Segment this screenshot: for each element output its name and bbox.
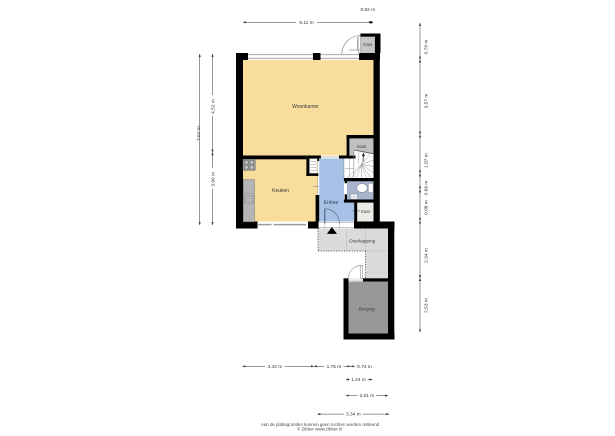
svg-text:0.08 m: 0.08 m [424,200,430,215]
svg-text:1.75 m: 1.75 m [327,364,342,370]
svg-text:0.74 m: 0.74 m [357,364,372,370]
svg-text:Keuken: Keuken [272,188,289,194]
svg-text:3.34 m: 3.34 m [346,412,361,418]
svg-text:2.34 m: 2.34 m [424,248,430,263]
svg-text:3.90 m: 3.90 m [210,172,216,187]
svg-text:6.11 m: 6.11 m [299,20,313,26]
svg-text:Woonkamer: Woonkamer [292,104,319,110]
svg-text:3.57 m: 3.57 m [424,94,430,109]
svg-text:© Zibber www.zibber.nl: © Zibber www.zibber.nl [297,427,342,432]
svg-text:Entree: Entree [324,200,339,206]
svg-text:Overkapping: Overkapping [349,238,375,243]
svg-text:1.24 m: 1.24 m [351,377,366,383]
svg-text:Kast: Kast [361,209,371,214]
svg-text:2.53 m: 2.53 m [424,298,430,313]
svg-text:3.42 m: 3.42 m [267,364,282,370]
svg-text:0.62 m: 0.62 m [360,7,375,13]
svg-text:0.69 m: 0.69 m [424,181,430,196]
svg-text:0.79 m: 0.79 m [424,40,430,55]
svg-text:1.87 m: 1.87 m [424,153,430,168]
svg-text:2.01 m: 2.01 m [360,393,375,399]
svg-text:Berging: Berging [359,306,375,311]
svg-text:Kast: Kast [363,42,373,47]
svg-text:Kast: Kast [357,144,367,149]
svg-text:7.62 m: 7.62 m [196,126,202,141]
svg-text:4.52 m: 4.52 m [210,99,216,114]
